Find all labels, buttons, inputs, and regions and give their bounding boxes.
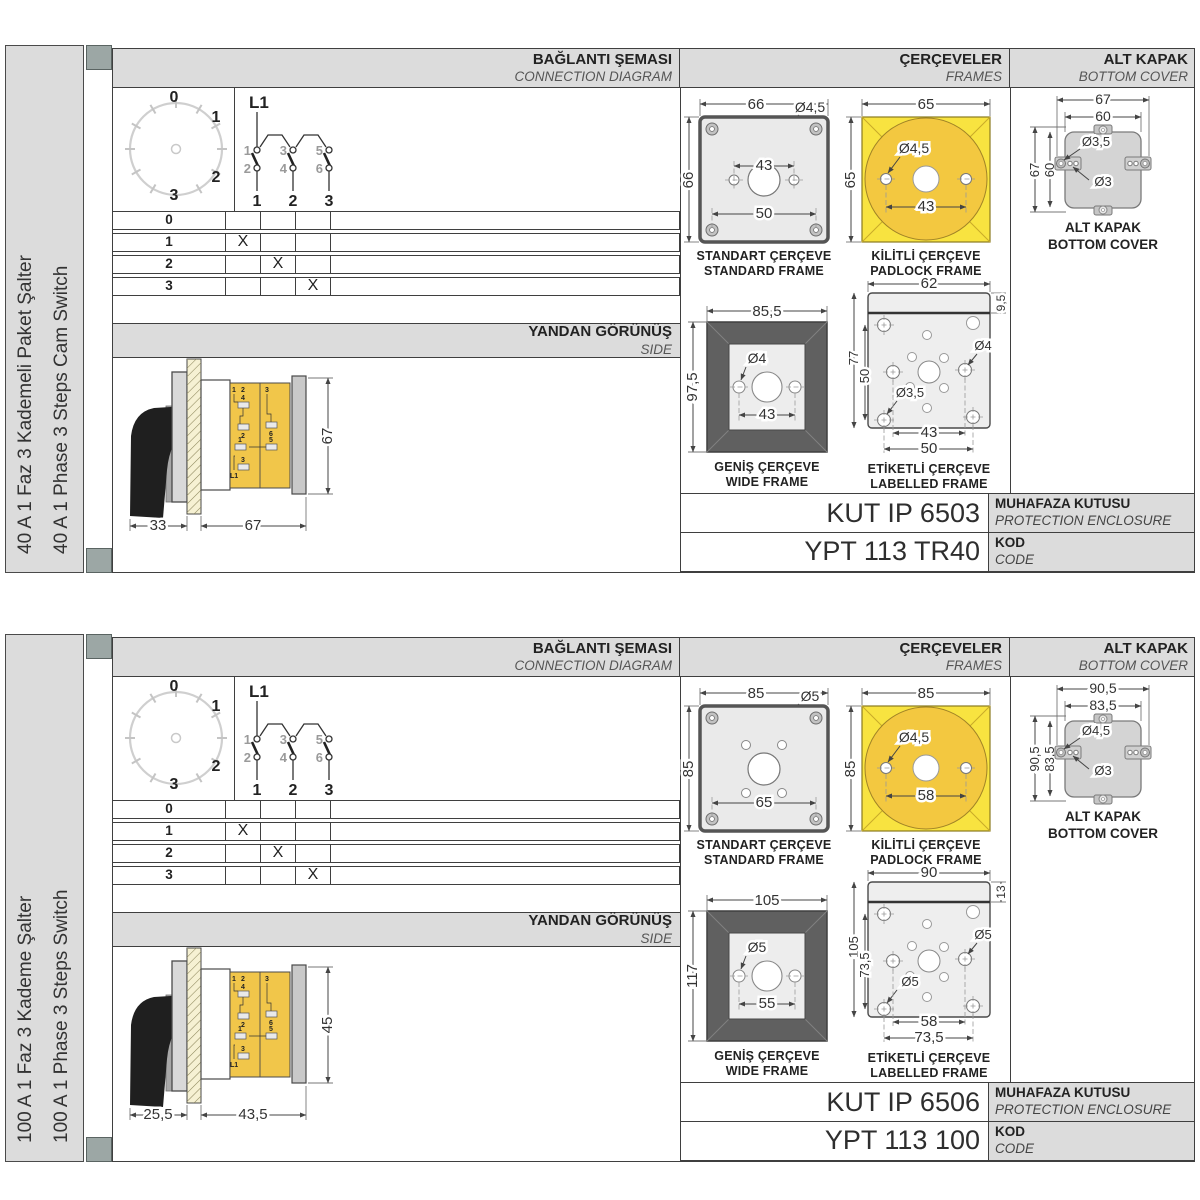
registration-mark-bottom xyxy=(86,1137,112,1162)
registration-mark-top xyxy=(86,45,112,70)
product-section: 100 A 1 Faz 3 Kademe Şalter 100 A 1 Phas… xyxy=(0,634,1200,1164)
product-title-turkish: 100 A 1 Faz 3 Kademe Şalter xyxy=(8,643,44,1155)
registration-mark-top xyxy=(86,634,112,659)
product-title-english: 100 A 1 Phase 3 Steps Switch xyxy=(44,643,80,1155)
section-outer-border xyxy=(112,48,1195,573)
product-title-sidebar: 100 A 1 Faz 3 Kademe Şalter 100 A 1 Phas… xyxy=(5,634,84,1162)
catalog-page: 40 A 1 Faz 3 Kademeli Paket Şalter 40 A … xyxy=(0,0,1200,1200)
product-title-english: 40 A 1 Phase 3 Steps Cam Switch xyxy=(44,54,80,566)
vertical-title-group: 40 A 1 Faz 3 Kademeli Paket Şalter 40 A … xyxy=(8,54,80,566)
product-section: 40 A 1 Faz 3 Kademeli Paket Şalter 40 A … xyxy=(0,45,1200,575)
vertical-title-group: 100 A 1 Faz 3 Kademe Şalter 100 A 1 Phas… xyxy=(8,643,80,1155)
product-title-turkish: 40 A 1 Faz 3 Kademeli Paket Şalter xyxy=(8,54,44,566)
registration-mark-bottom xyxy=(86,548,112,573)
product-title-sidebar: 40 A 1 Faz 3 Kademeli Paket Şalter 40 A … xyxy=(5,45,84,573)
section-outer-border xyxy=(112,637,1195,1162)
